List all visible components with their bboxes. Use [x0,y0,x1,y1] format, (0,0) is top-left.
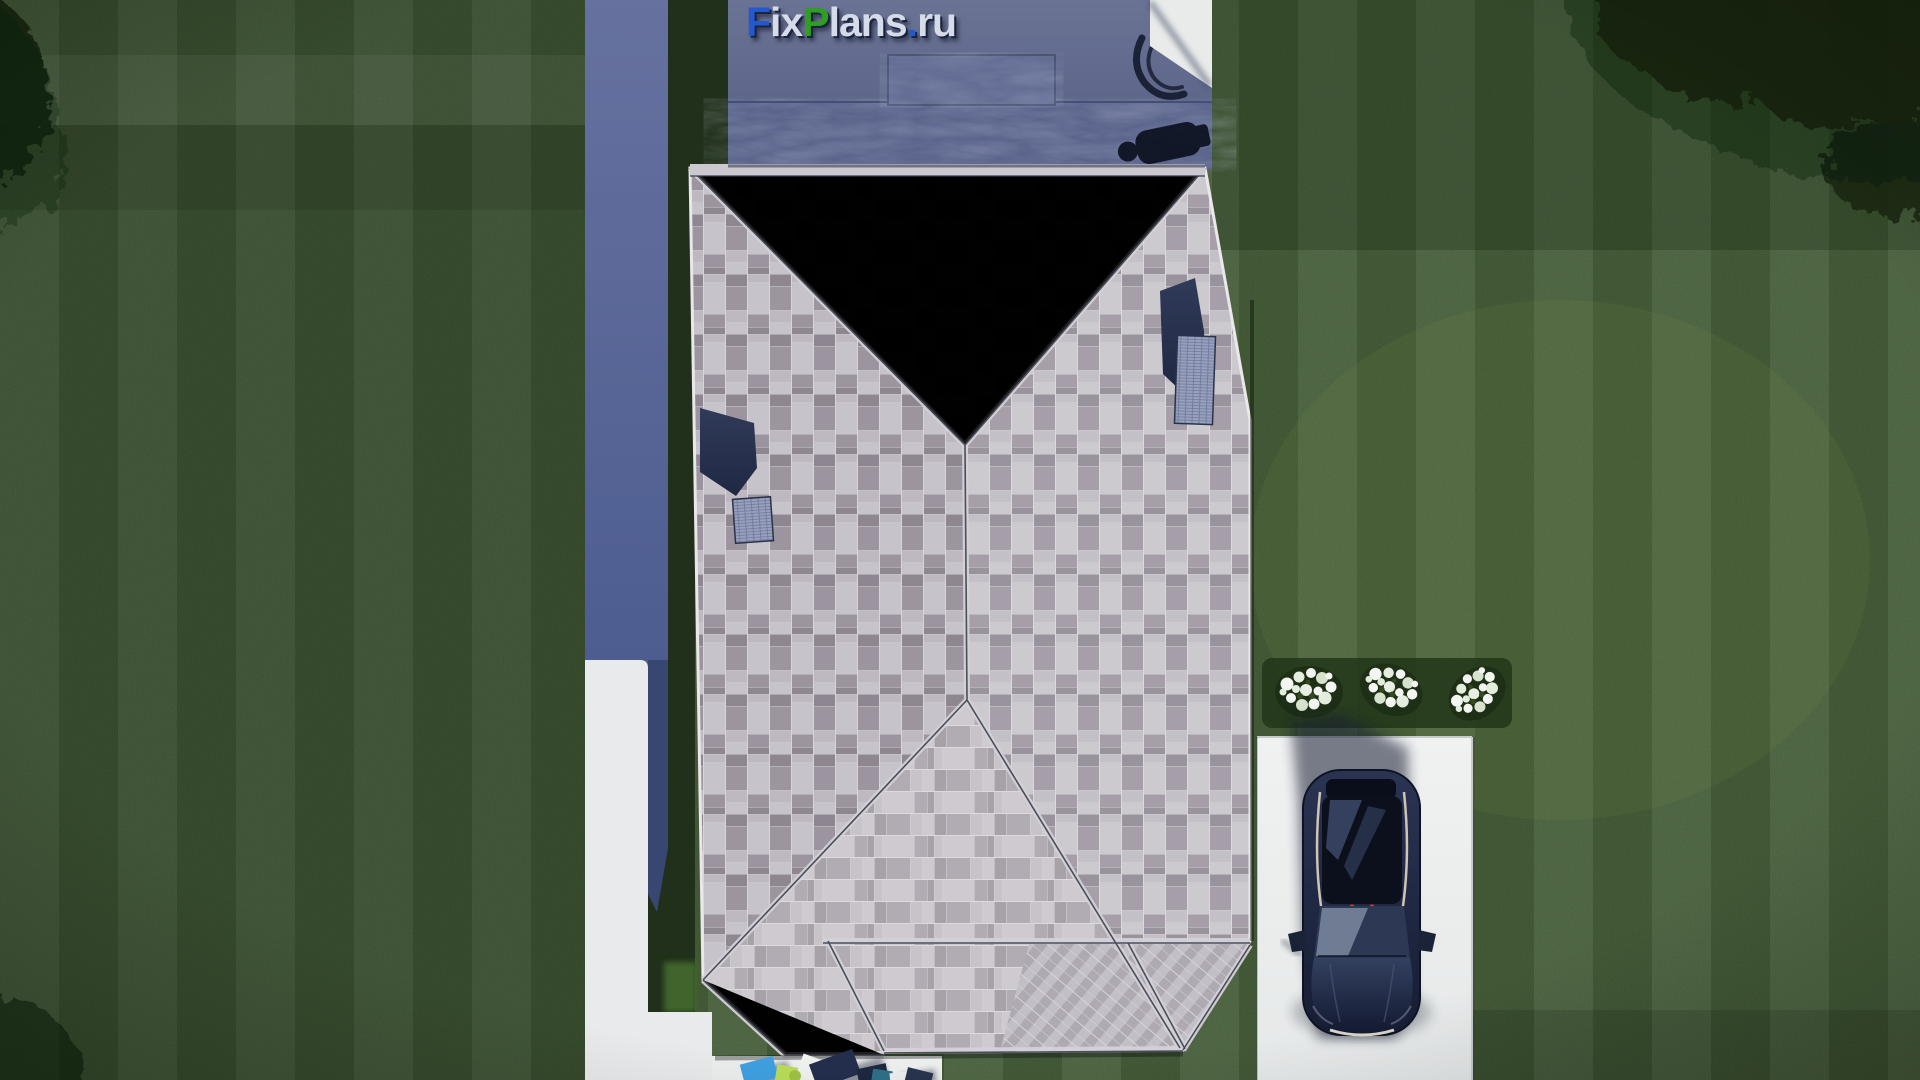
watermark-logo: FixPlans.ru [746,2,956,43]
vignette [0,0,1920,1080]
watermark-f: F [746,0,770,45]
watermark-dot: . [907,0,917,45]
watermark-ix: ix [770,0,802,45]
watermark-p: P [802,0,828,45]
watermark-ru: ru [917,0,956,45]
watermark-lans: lans [829,0,907,45]
aerial-render-view: FixPlans.ru [0,0,1920,1080]
render-canvas [0,0,1920,1080]
